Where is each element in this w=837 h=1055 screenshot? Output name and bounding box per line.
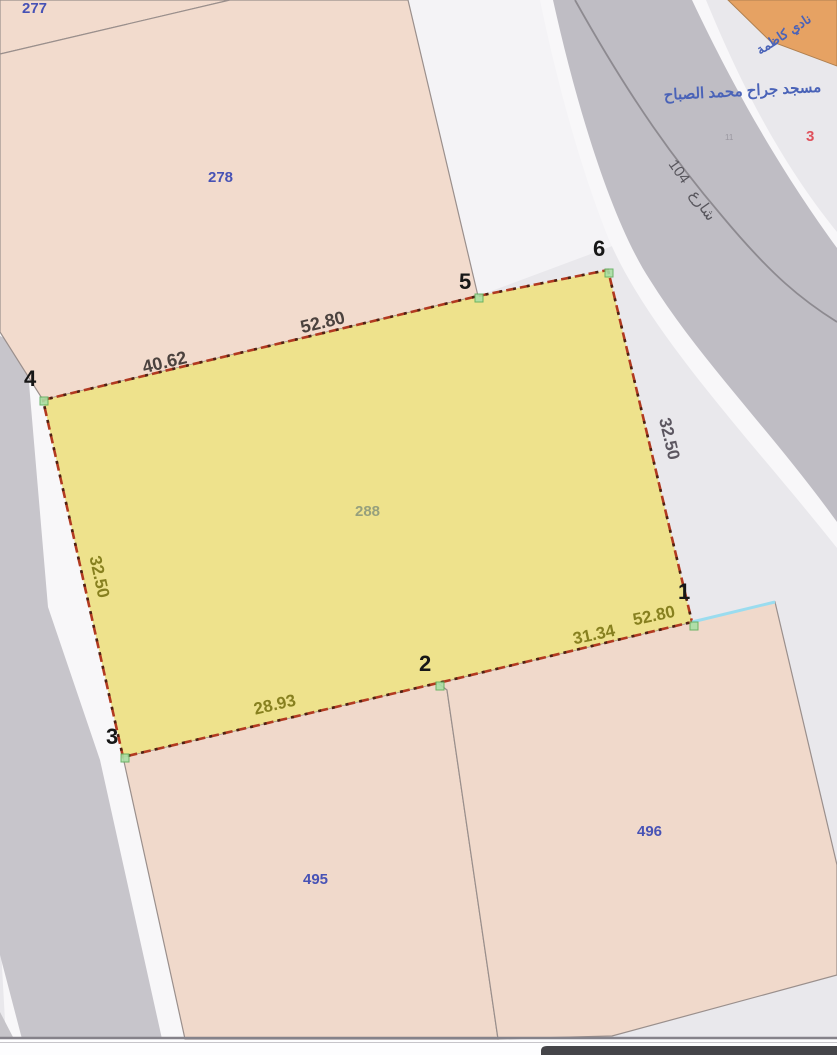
map-viewport[interactable]: 277 278 288 495 496 40.62 52.80 32.50 32… — [0, 0, 837, 1055]
vertex-marker-3[interactable] — [121, 754, 129, 762]
vertex-label-1: 1 — [678, 579, 690, 604]
parcel-label-496: 496 — [637, 823, 662, 840]
vertex-marker-6[interactable] — [605, 269, 613, 277]
vertex-label-4: 4 — [24, 366, 37, 391]
block-number-badge: 3 — [806, 128, 814, 145]
vertex-marker-5[interactable] — [475, 294, 483, 302]
vertex-marker-2[interactable] — [436, 682, 444, 690]
vertex-marker-4[interactable] — [40, 397, 48, 405]
scrollbar-thumb[interactable] — [541, 1046, 837, 1055]
vertex-label-6: 6 — [593, 236, 605, 261]
parcel-label-288: 288 — [355, 503, 380, 520]
vertex-marker-1[interactable] — [690, 622, 698, 630]
parcel-label-277: 277 — [22, 0, 47, 17]
vertex-label-2: 2 — [419, 651, 431, 676]
parcel-label-278: 278 — [208, 169, 233, 186]
vertex-label-5: 5 — [459, 269, 471, 294]
parcel-label-495: 495 — [303, 871, 328, 888]
map-canvas[interactable]: 277 278 288 495 496 40.62 52.80 32.50 32… — [0, 0, 837, 1055]
house-number-mark: 11 — [725, 133, 734, 142]
vertex-label-3: 3 — [106, 724, 118, 749]
